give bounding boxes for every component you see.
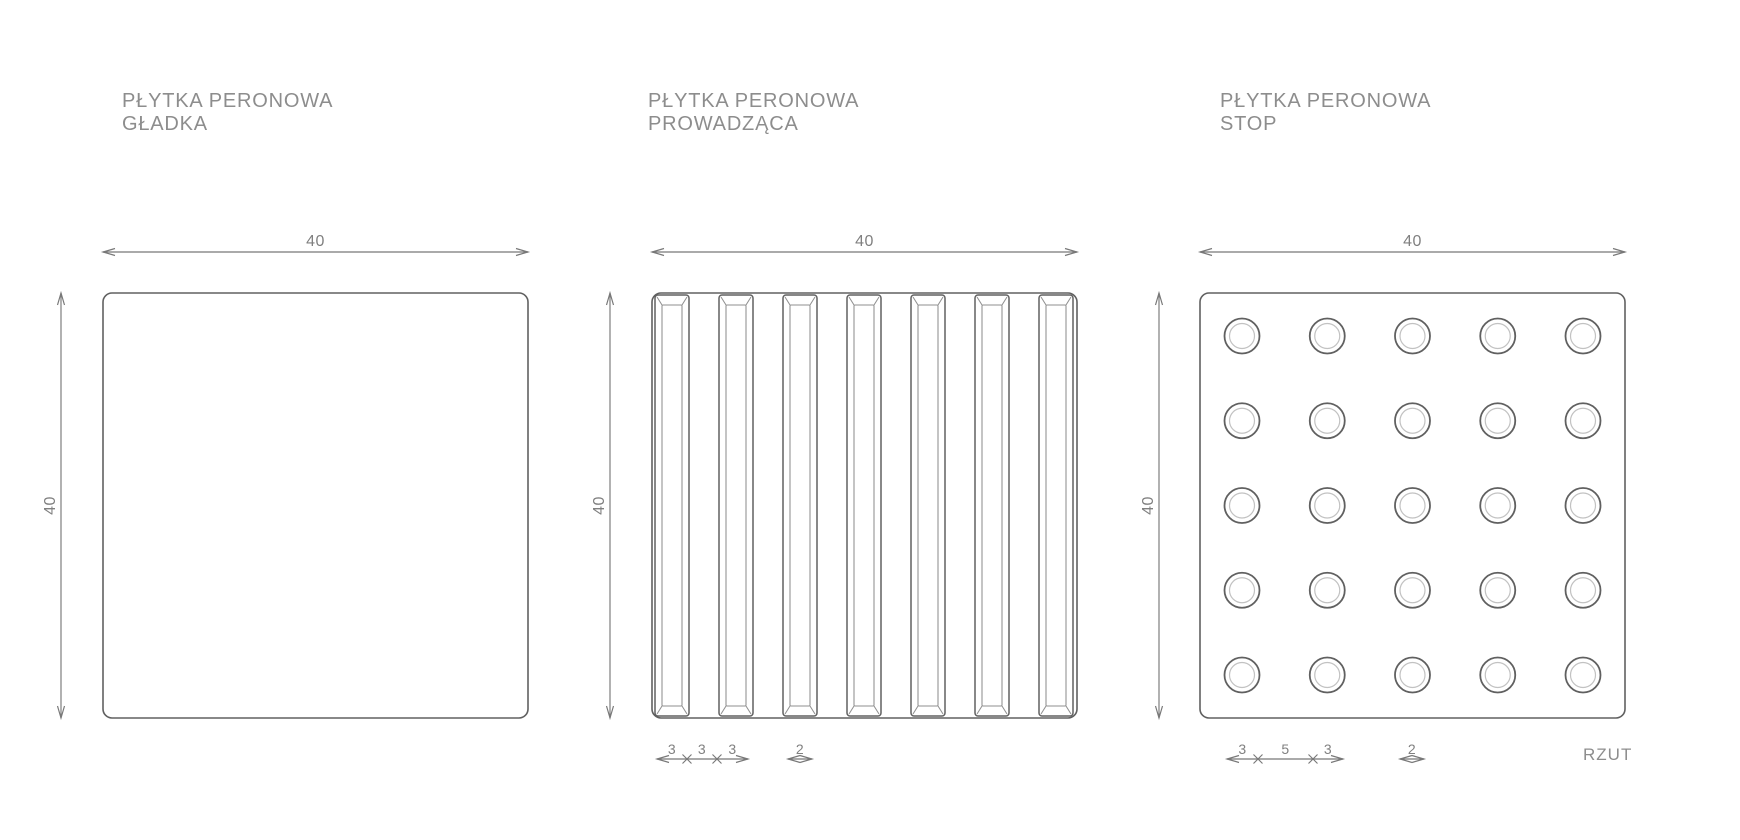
dim-detail-prowadzaca-label-2: 3 (728, 741, 736, 757)
dim-detail-stop-label-0: 3 (1238, 741, 1246, 757)
technical-drawing-canvas: 40404040333240403532 (0, 0, 1740, 840)
dim-detail-prowadzaca-label-0: 3 (668, 741, 676, 757)
drawing-stage: PŁYTKA PERONOWA GŁADKA PŁYTKA PERONOWA P… (0, 0, 1740, 840)
dim-detail-stop-label-1: 5 (1281, 741, 1289, 757)
dim-detail-prowadzaca-label-1: 3 (698, 741, 706, 757)
tile-outline-gladka (103, 293, 528, 718)
dim-top-stop-label: 40 (1403, 233, 1422, 250)
view-label-rzut: RZUT (1583, 745, 1632, 765)
dim-left-gladka-label: 40 (42, 496, 59, 515)
tile-outline-prowadzaca (652, 293, 1077, 718)
dim-top-gladka-label: 40 (306, 233, 325, 250)
tile-outline-stop (1200, 293, 1625, 718)
dim-detail-stop-label-2: 3 (1324, 741, 1332, 757)
dim-top-prowadzaca-label: 40 (855, 233, 874, 250)
dim-width-stop-label: 2 (1408, 741, 1416, 757)
dim-left-stop-label: 40 (1140, 496, 1157, 515)
dim-left-prowadzaca-label: 40 (591, 496, 608, 515)
dim-width-prowadzaca-label: 2 (796, 741, 804, 757)
